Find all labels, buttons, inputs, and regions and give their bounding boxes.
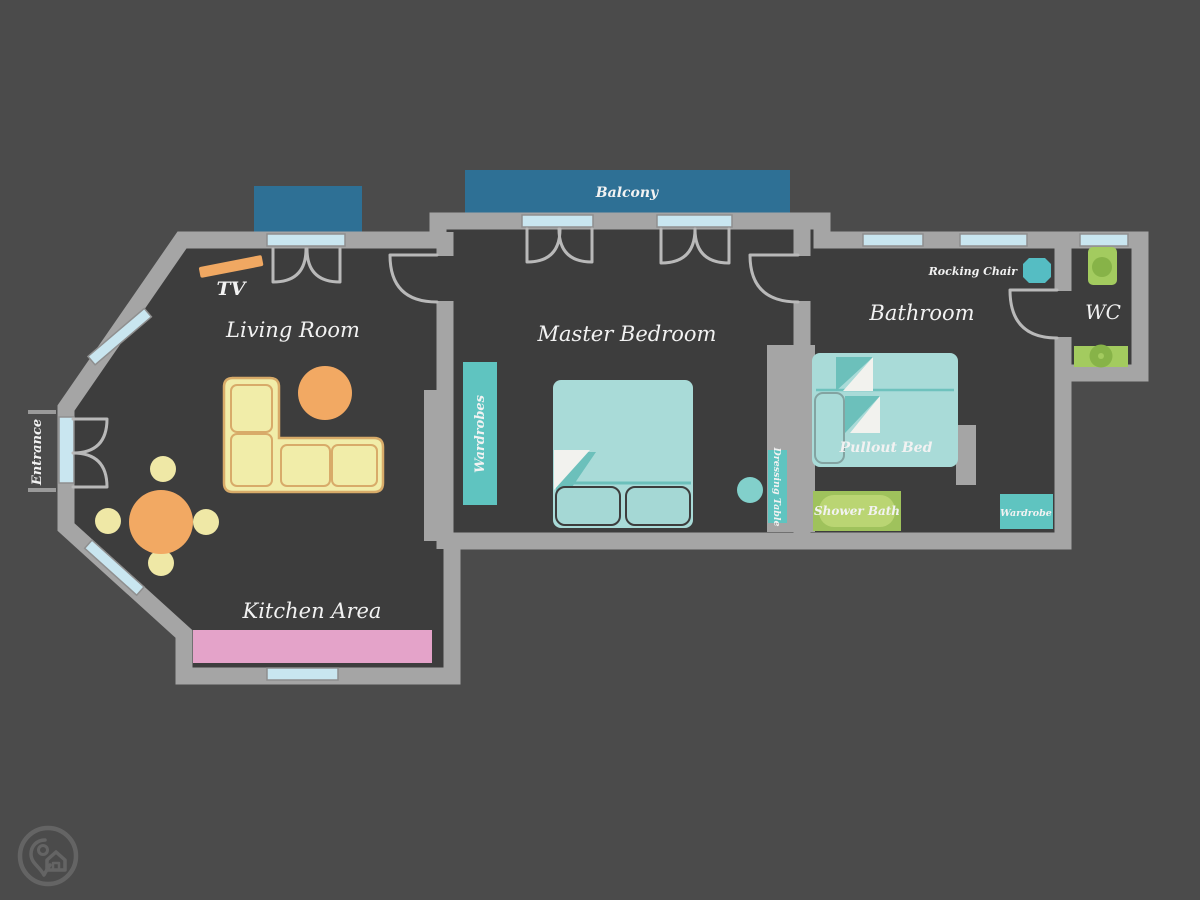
wardrobes-label: Wardrobes <box>473 394 488 473</box>
rocking-chair <box>1023 258 1051 283</box>
wall-stub-bathroom <box>956 425 976 485</box>
pullout-bed-label: Pullout Bed <box>839 440 933 456</box>
floor-plan-page: Balcony TV Living Room Master Bedroom Ba… <box>0 0 1200 900</box>
master-bed <box>553 380 693 528</box>
shower-bath-label: Shower Bath <box>814 504 900 518</box>
wc-label: WC <box>1085 300 1121 324</box>
window-wc <box>1080 234 1128 246</box>
wall-kitchen-step <box>424 390 438 541</box>
small-balcony-area <box>254 186 362 232</box>
entrance-label: Entrance <box>30 419 45 486</box>
window-bathroom-2 <box>960 234 1027 246</box>
tv-label: TV <box>217 278 248 300</box>
toilet <box>1088 247 1117 285</box>
side-table <box>298 366 352 420</box>
window-balcony-door-2 <box>657 215 732 227</box>
balcony-label: Balcony <box>595 185 659 201</box>
kitchen-area-label: Kitchen Area <box>242 599 382 623</box>
window-kitchen <box>267 668 338 680</box>
bathroom-label: Bathroom <box>868 301 974 325</box>
master-bedroom-label: Master Bedroom <box>537 322 717 346</box>
wc-sink <box>1074 345 1128 368</box>
kitchen-counter <box>193 630 432 663</box>
floor-plan-canvas: Balcony TV Living Room Master Bedroom Ba… <box>0 0 1200 900</box>
window-balcony-door-1 <box>522 215 593 227</box>
dining-table <box>129 490 193 554</box>
rocking-chair-label: Rocking Chair <box>928 265 1019 278</box>
dressing-stool <box>737 477 763 503</box>
living-room-label: Living Room <box>225 318 360 342</box>
window-living-top <box>267 234 345 246</box>
dressing-table-label: Dressing Table <box>771 446 782 526</box>
wardrobe-label: Wardrobe <box>1000 508 1052 519</box>
window-bathroom-1 <box>863 234 923 246</box>
entrance-opening <box>59 417 74 483</box>
